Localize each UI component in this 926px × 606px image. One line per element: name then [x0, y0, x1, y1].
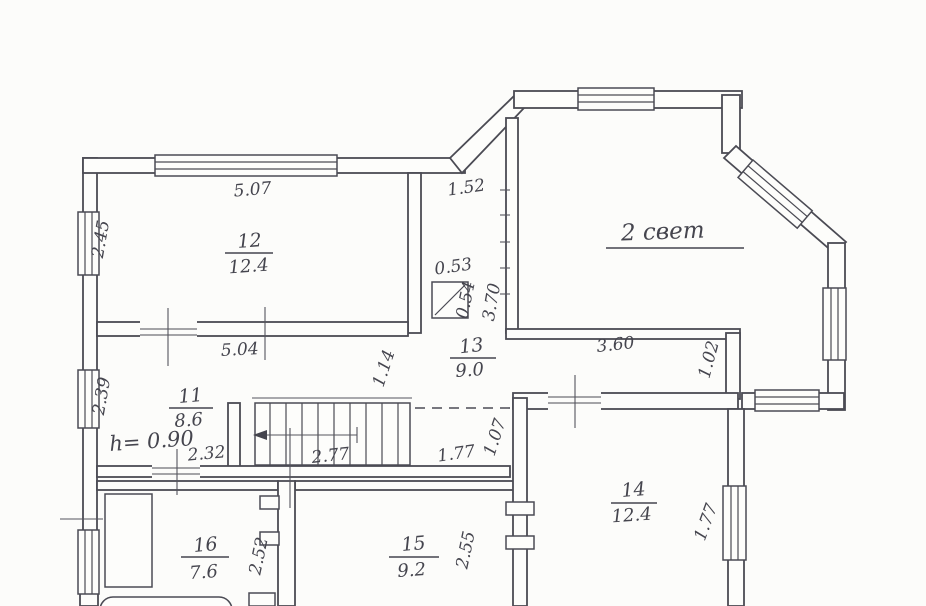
room16-number: 16	[192, 533, 218, 557]
dim-room14-window: 1.77	[690, 501, 722, 544]
dim-stairs-run: 2.77	[310, 444, 351, 468]
window-left-3	[78, 530, 99, 594]
wall-stairwell-left	[228, 403, 240, 470]
wall-partition-2svet	[506, 118, 518, 333]
dim-room15-depth: 2.55	[452, 529, 480, 571]
dim-corridor-width: 1.14	[369, 347, 400, 389]
room15-area: 9.2	[397, 559, 427, 582]
window-frame	[823, 288, 846, 360]
dim-room12-top: 5.07	[233, 178, 273, 201]
window-room14	[723, 486, 746, 560]
window-bay-bottom	[755, 390, 819, 411]
room13-number: 13	[458, 334, 484, 358]
wall-bay-return	[726, 333, 740, 399]
bottom-fixture	[100, 597, 232, 606]
wall-bay-right-upper	[722, 95, 740, 153]
window-bay-diagonal	[738, 160, 812, 228]
room15-number: 15	[400, 532, 426, 556]
door-jamb-15-14-b	[506, 536, 534, 549]
door-jamb-15-14-a	[506, 502, 534, 515]
dim-nook-width: 1.52	[446, 176, 486, 201]
wall-room12-right	[408, 173, 421, 333]
window-frame	[723, 486, 746, 560]
window-frame	[78, 530, 99, 594]
wall-divider-16-15	[278, 481, 295, 606]
window-bay-right	[823, 288, 846, 360]
dim-landing-length: 1.77	[436, 441, 476, 466]
room14-number: 14	[620, 478, 646, 502]
door-jamb-bottom	[249, 593, 275, 606]
dim-bay-bottom: 3.60	[596, 333, 636, 357]
room16-furniture	[105, 494, 152, 587]
room13-area: 9.0	[455, 359, 485, 382]
room14-area: 12.4	[611, 504, 652, 528]
floor-plan-page: 12 12.4 13 9.0 11 8.6 16 7.6 15 9.2 14 1…	[0, 0, 926, 606]
dim-flue-width: 0.53	[433, 255, 473, 280]
room12-area: 12.4	[228, 255, 269, 279]
floor-plan-canvas: 12 12.4 13 9.0 11 8.6 16 7.6 15 9.2 14 1…	[0, 0, 926, 606]
window-bay-top	[578, 88, 654, 110]
room16-area: 7.6	[189, 561, 219, 584]
dim-room16-depth: 2.52	[245, 535, 273, 577]
dim-landing-width: 1.07	[480, 416, 511, 458]
ceiling-height-note: h= 0.90	[108, 426, 194, 456]
dim-partition-height: 3.70	[479, 282, 505, 323]
wall-room14-top	[513, 393, 738, 409]
window-frame	[738, 160, 812, 228]
window-room12-top	[155, 155, 337, 176]
door-jamb-16-15-a	[260, 496, 279, 509]
window-frame	[578, 88, 654, 110]
window-frame	[155, 155, 337, 176]
dim-hall-width: 5.04	[220, 339, 259, 361]
second-light-label: 2 свет	[620, 218, 705, 247]
dim-under-stairs: 2.32	[186, 442, 226, 465]
wall-room15-top	[295, 481, 517, 490]
room11-number: 11	[177, 384, 203, 408]
wall-room16-top	[97, 481, 278, 490]
door-corridor	[152, 464, 200, 478]
room12-number: 12	[237, 229, 263, 253]
window-frame	[755, 390, 819, 411]
dim-bay-return: 1.02	[695, 339, 724, 381]
